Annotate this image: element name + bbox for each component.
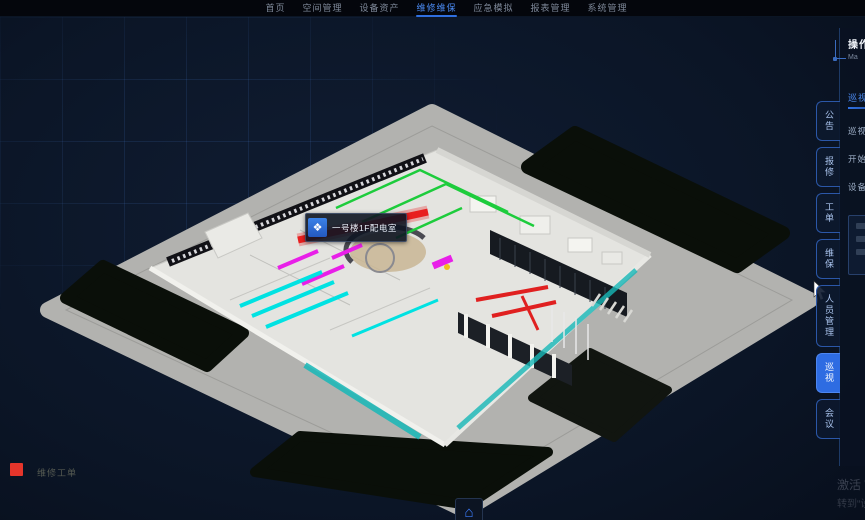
- panel-field-device-category: 设备分类: [848, 181, 865, 193]
- home-icon: ⌂: [464, 504, 473, 520]
- nav-item-home[interactable]: 首页: [265, 1, 285, 16]
- vtab-work-orders[interactable]: 工单: [816, 193, 840, 233]
- right-tab-strip: 公告 报修 工单 维保 人员管理 巡视 会议: [816, 101, 840, 439]
- panel-section-title: 巡视路线: [848, 91, 865, 104]
- panel-connector-decoration: [835, 40, 846, 59]
- watermark-line2: 转到“设置”以激活 Windows。: [837, 495, 865, 510]
- panel-info-line: [856, 223, 865, 229]
- windows-activation-watermark: 激活 Windows 转到“设置”以激活 Windows。: [837, 476, 865, 510]
- vtab-personnel-management[interactable]: 人员管理: [816, 285, 840, 347]
- reset-view-home-button[interactable]: ⌂: [455, 498, 483, 520]
- panel-connector-dot: [833, 57, 837, 61]
- model-tooltip: ❖ 一号楼1F配电室: [305, 213, 407, 242]
- nav-item-maintenance-label: 维修维保: [416, 3, 456, 13]
- legend-label: 维修工单: [37, 466, 77, 479]
- panel-info-line: [856, 236, 865, 242]
- panel-info-line: [856, 249, 865, 255]
- vtab-patrol[interactable]: 巡视: [816, 353, 840, 393]
- device-icon: ❖: [308, 218, 327, 237]
- nav-item-equipment-assets[interactable]: 设备资产: [359, 1, 399, 16]
- panel-section-underline: [848, 107, 865, 109]
- right-detail-panel: 操作 Ma 巡视路线 巡视范围 开始时间 设备分类: [839, 28, 865, 466]
- active-tab-underline: [416, 15, 456, 17]
- watermark-line1: 激活 Windows: [837, 476, 865, 493]
- nav-item-report-management[interactable]: 报表管理: [531, 1, 571, 16]
- legend-red-swatch: [10, 463, 23, 476]
- panel-field-start-time: 开始时间: [848, 153, 865, 165]
- nav-item-system-management[interactable]: 系统管理: [588, 1, 628, 16]
- legend: 维修工单: [10, 463, 77, 479]
- model-tooltip-label: 一号楼1F配电室: [332, 222, 397, 234]
- nav-item-emergency-simulation[interactable]: 应急模拟: [474, 1, 514, 16]
- vtab-announcements[interactable]: 公告: [816, 101, 840, 141]
- panel-title: 操作: [848, 36, 865, 51]
- panel-subtitle: Ma: [848, 54, 865, 61]
- vtab-meeting[interactable]: 会议: [816, 399, 840, 439]
- 3d-scene[interactable]: [0, 0, 865, 520]
- vtab-repair-report[interactable]: 报修: [816, 147, 840, 187]
- app-window: 首页 空间管理 设备资产 维修维保 应急模拟 报表管理 系统管理 ❖ 一号楼1F…: [0, 0, 865, 520]
- panel-info-box: [848, 215, 865, 275]
- top-navbar: 首页 空间管理 设备资产 维修维保 应急模拟 报表管理 系统管理: [0, 0, 865, 17]
- nav-item-space-management[interactable]: 空间管理: [302, 1, 342, 16]
- panel-field-scope: 巡视范围: [848, 125, 865, 137]
- nav-item-maintenance[interactable]: 维修维保: [416, 1, 456, 16]
- vtab-maintenance[interactable]: 维保: [816, 239, 840, 279]
